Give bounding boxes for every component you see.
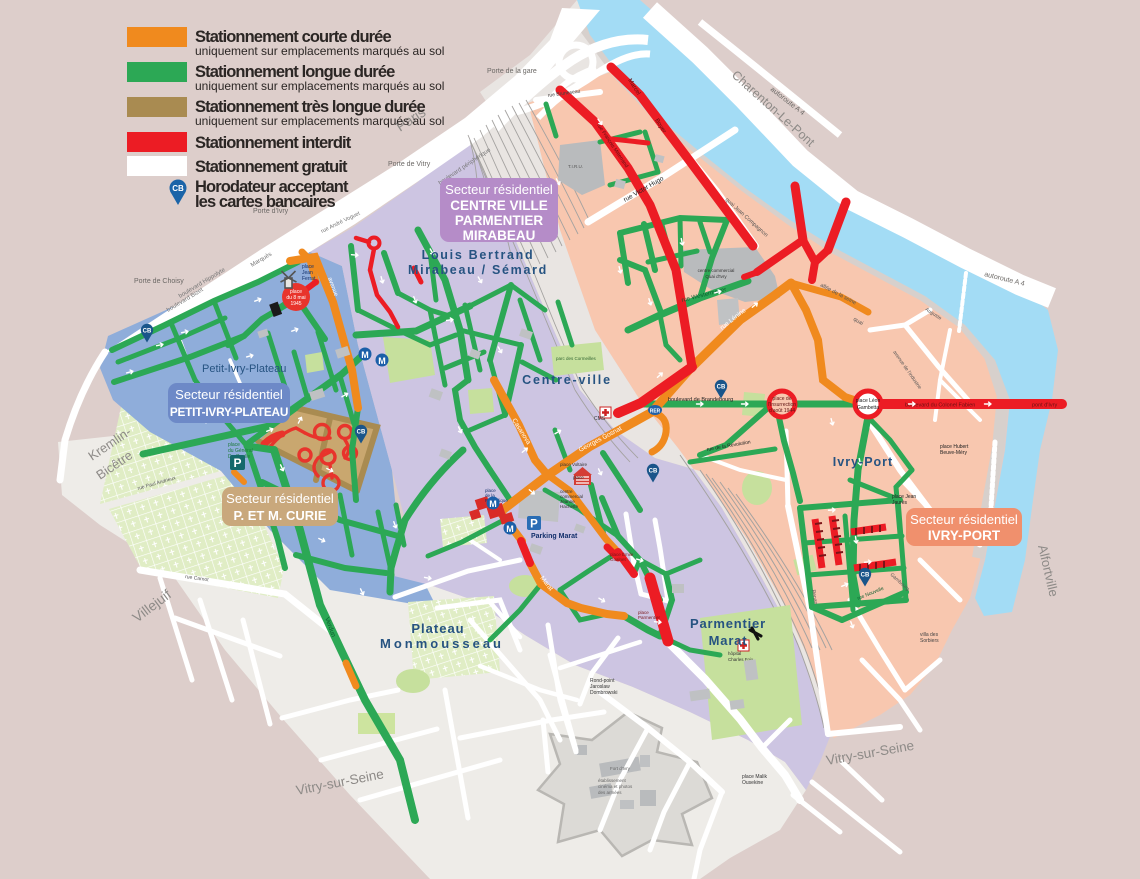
svg-text:uniquement sur emplacements ma: uniquement sur emplacements marqués au s… (195, 114, 444, 128)
svg-text:IVRY-PORT: IVRY-PORT (928, 528, 1001, 543)
svg-text:uniquement sur emplacements ma: uniquement sur emplacements marqués au s… (195, 44, 444, 58)
svg-text:centre commercial: centre commercial (698, 268, 735, 273)
svg-text:Jaurès: Jaurès (892, 500, 908, 506)
svg-text:RER: RER (650, 409, 661, 415)
svg-text:CENTRE VILLE: CENTRE VILLE (450, 198, 548, 213)
svg-text:CMS: CMS (594, 416, 606, 422)
svg-text:Stationnement interdit: Stationnement interdit (195, 134, 352, 152)
svg-text:Ivry-Port: Ivry-Port (833, 455, 893, 469)
svg-text:les cartes bancaires: les cartes bancaires (195, 193, 335, 211)
svg-text:Petit-Ivry-Plateau: Petit-Ivry-Plateau (202, 363, 286, 375)
svg-text:PARMENTIER: PARMENTIER (455, 213, 544, 228)
svg-text:Dombrowski: Dombrowski (590, 690, 618, 696)
svg-text:P: P (233, 456, 241, 470)
svg-text:M: M (489, 499, 497, 509)
svg-text:Porte de Choisy: Porte de Choisy (134, 278, 184, 285)
svg-text:Secteur résidentiel: Secteur résidentiel (910, 512, 1018, 527)
svg-text:d'août 1944: d'août 1944 (769, 408, 795, 414)
svg-text:Monmousseau: Monmousseau (380, 636, 504, 651)
svg-text:P. ET M. CURIE: P. ET M. CURIE (234, 508, 327, 523)
svg-text:M: M (506, 524, 514, 534)
svg-text:MIRABEAU: MIRABEAU (463, 228, 536, 243)
svg-text:Quai d'Ivry: Quai d'Ivry (705, 274, 727, 279)
svg-text:Louis Bertrand: Louis Bertrand (422, 248, 535, 262)
svg-text:Parmentier: Parmentier (690, 616, 766, 631)
svg-text:Beuve-Méry: Beuve-Méry (940, 450, 967, 456)
svg-text:Gambetta: Gambetta (857, 405, 879, 411)
svg-text:hôpital: hôpital (728, 651, 741, 656)
svg-text:PETIT-IVRY-PLATEAU: PETIT-IVRY-PLATEAU (170, 405, 288, 419)
svg-text:Ferrat: Ferrat (302, 276, 316, 282)
svg-text:M: M (361, 350, 369, 360)
svg-text:Marat: Marat (709, 633, 748, 648)
svg-text:Porte de Vitry: Porte de Vitry (388, 161, 431, 168)
svg-text:Goalnet: Goalnet (610, 557, 627, 562)
svg-text:établissement: établissement (598, 778, 627, 783)
svg-text:P: P (530, 519, 538, 531)
svg-text:Parmentier: Parmentier (638, 615, 661, 620)
svg-text:Porte de la gare: Porte de la gare (487, 68, 537, 75)
svg-text:CB: CB (143, 328, 152, 334)
svg-text:Ousekine: Ousekine (742, 780, 763, 786)
svg-text:CB: CB (717, 384, 726, 390)
svg-text:des armées: des armées (598, 790, 622, 795)
svg-text:Mirabeau / Sémard: Mirabeau / Sémard (408, 263, 548, 277)
svg-text:1945: 1945 (290, 301, 301, 307)
svg-text:M: M (378, 356, 386, 366)
svg-text:Secteur résidentiel: Secteur résidentiel (175, 387, 283, 402)
svg-text:CB: CB (649, 468, 658, 474)
svg-text:CB: CB (861, 572, 870, 578)
svg-text:Centre-ville: Centre-ville (522, 373, 612, 387)
svg-text:Sorbiers: Sorbiers (920, 638, 939, 644)
svg-text:Parking Marat: Parking Marat (531, 533, 578, 540)
svg-text:boulevard du Colonel Fabien: boulevard du Colonel Fabien (905, 403, 975, 409)
svg-text:Stationnement gratuit: Stationnement gratuit (195, 158, 348, 176)
svg-text:CB: CB (357, 429, 366, 435)
svg-text:Fort d'Ivry: Fort d'Ivry (610, 766, 631, 771)
svg-text:Hachette: Hachette (560, 504, 579, 509)
svg-text:Plateau: Plateau (411, 621, 464, 636)
svg-text:cinéma et photos: cinéma et photos (598, 784, 633, 789)
svg-text:parc des Cormeilles: parc des Cormeilles (556, 356, 597, 361)
svg-text:place: place (573, 475, 584, 480)
svg-text:uniquement sur emplacements ma: uniquement sur emplacements marqués au s… (195, 79, 444, 93)
svg-text:Secteur résidentiel: Secteur résidentiel (226, 491, 334, 506)
svg-text:pont d'Ivry: pont d'Ivry (1032, 403, 1057, 409)
svg-text:place Voltaire: place Voltaire (560, 462, 588, 467)
svg-text:Secteur résidentiel: Secteur résidentiel (445, 182, 553, 197)
svg-text:place Léon: place Léon (856, 398, 881, 404)
svg-text:CB: CB (172, 184, 184, 193)
svg-text:T.I.R.U.: T.I.R.U. (568, 164, 583, 169)
